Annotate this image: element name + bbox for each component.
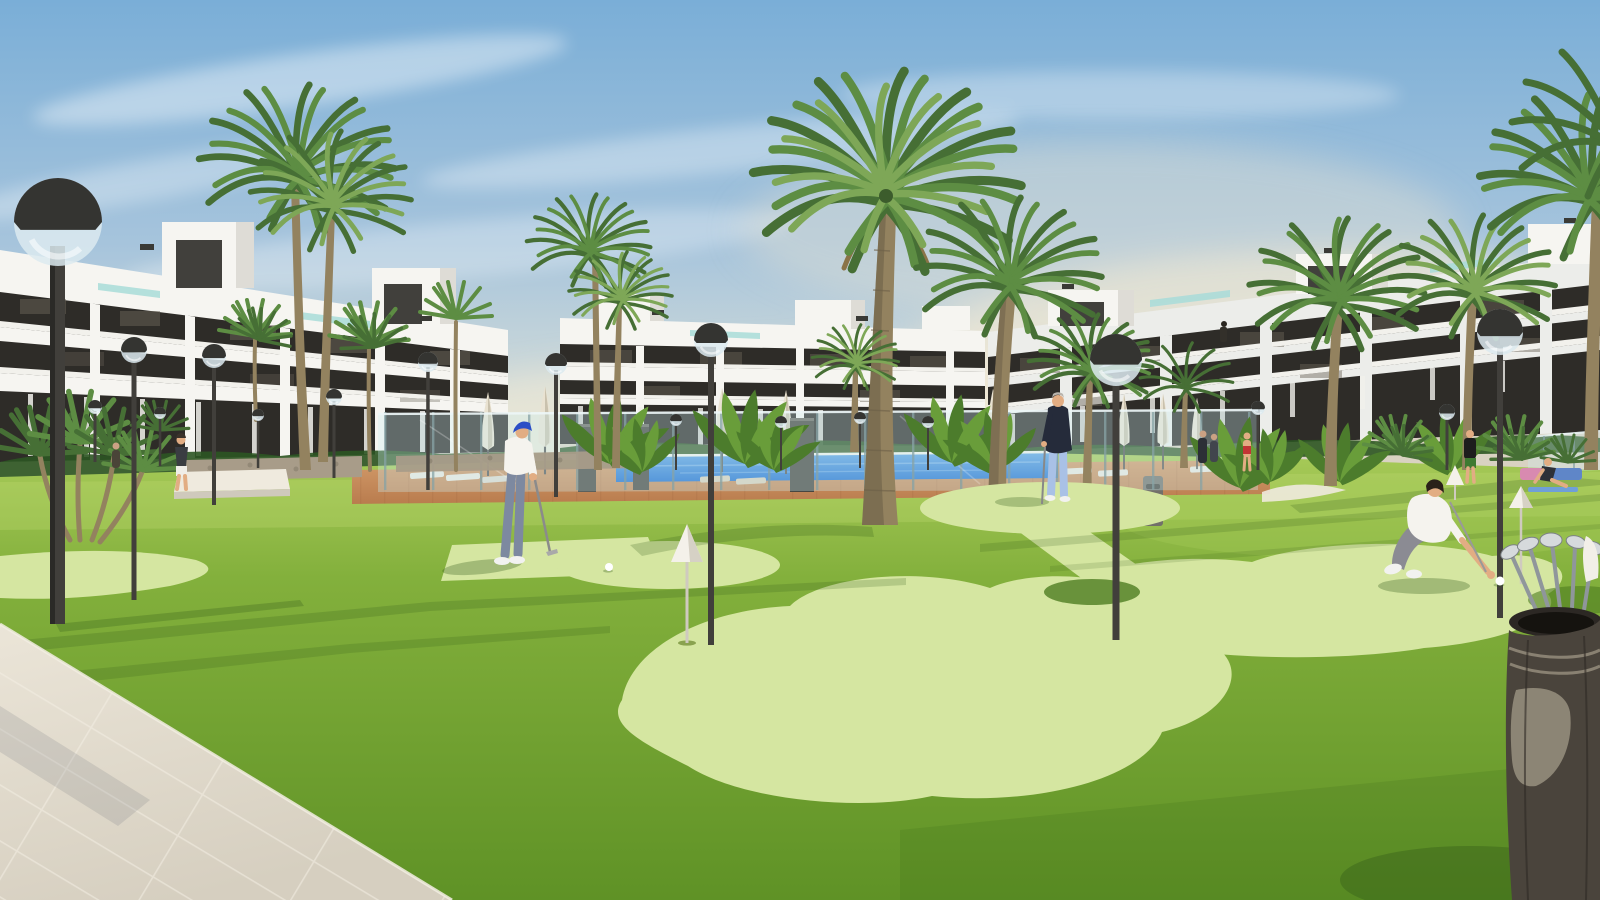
exercise-mat: [1528, 487, 1578, 492]
render-canvas: 3D architectural rendering Sunny resort …: [0, 0, 1600, 900]
head: [1052, 395, 1064, 407]
balcony-figure: [1220, 321, 1227, 342]
hands: [529, 473, 537, 481]
architectural-render: 3D architectural rendering Sunny resort …: [0, 0, 1600, 900]
green-dark-patch: [1044, 579, 1140, 605]
white-bench: [174, 469, 290, 499]
person-on-path: [112, 443, 120, 469]
